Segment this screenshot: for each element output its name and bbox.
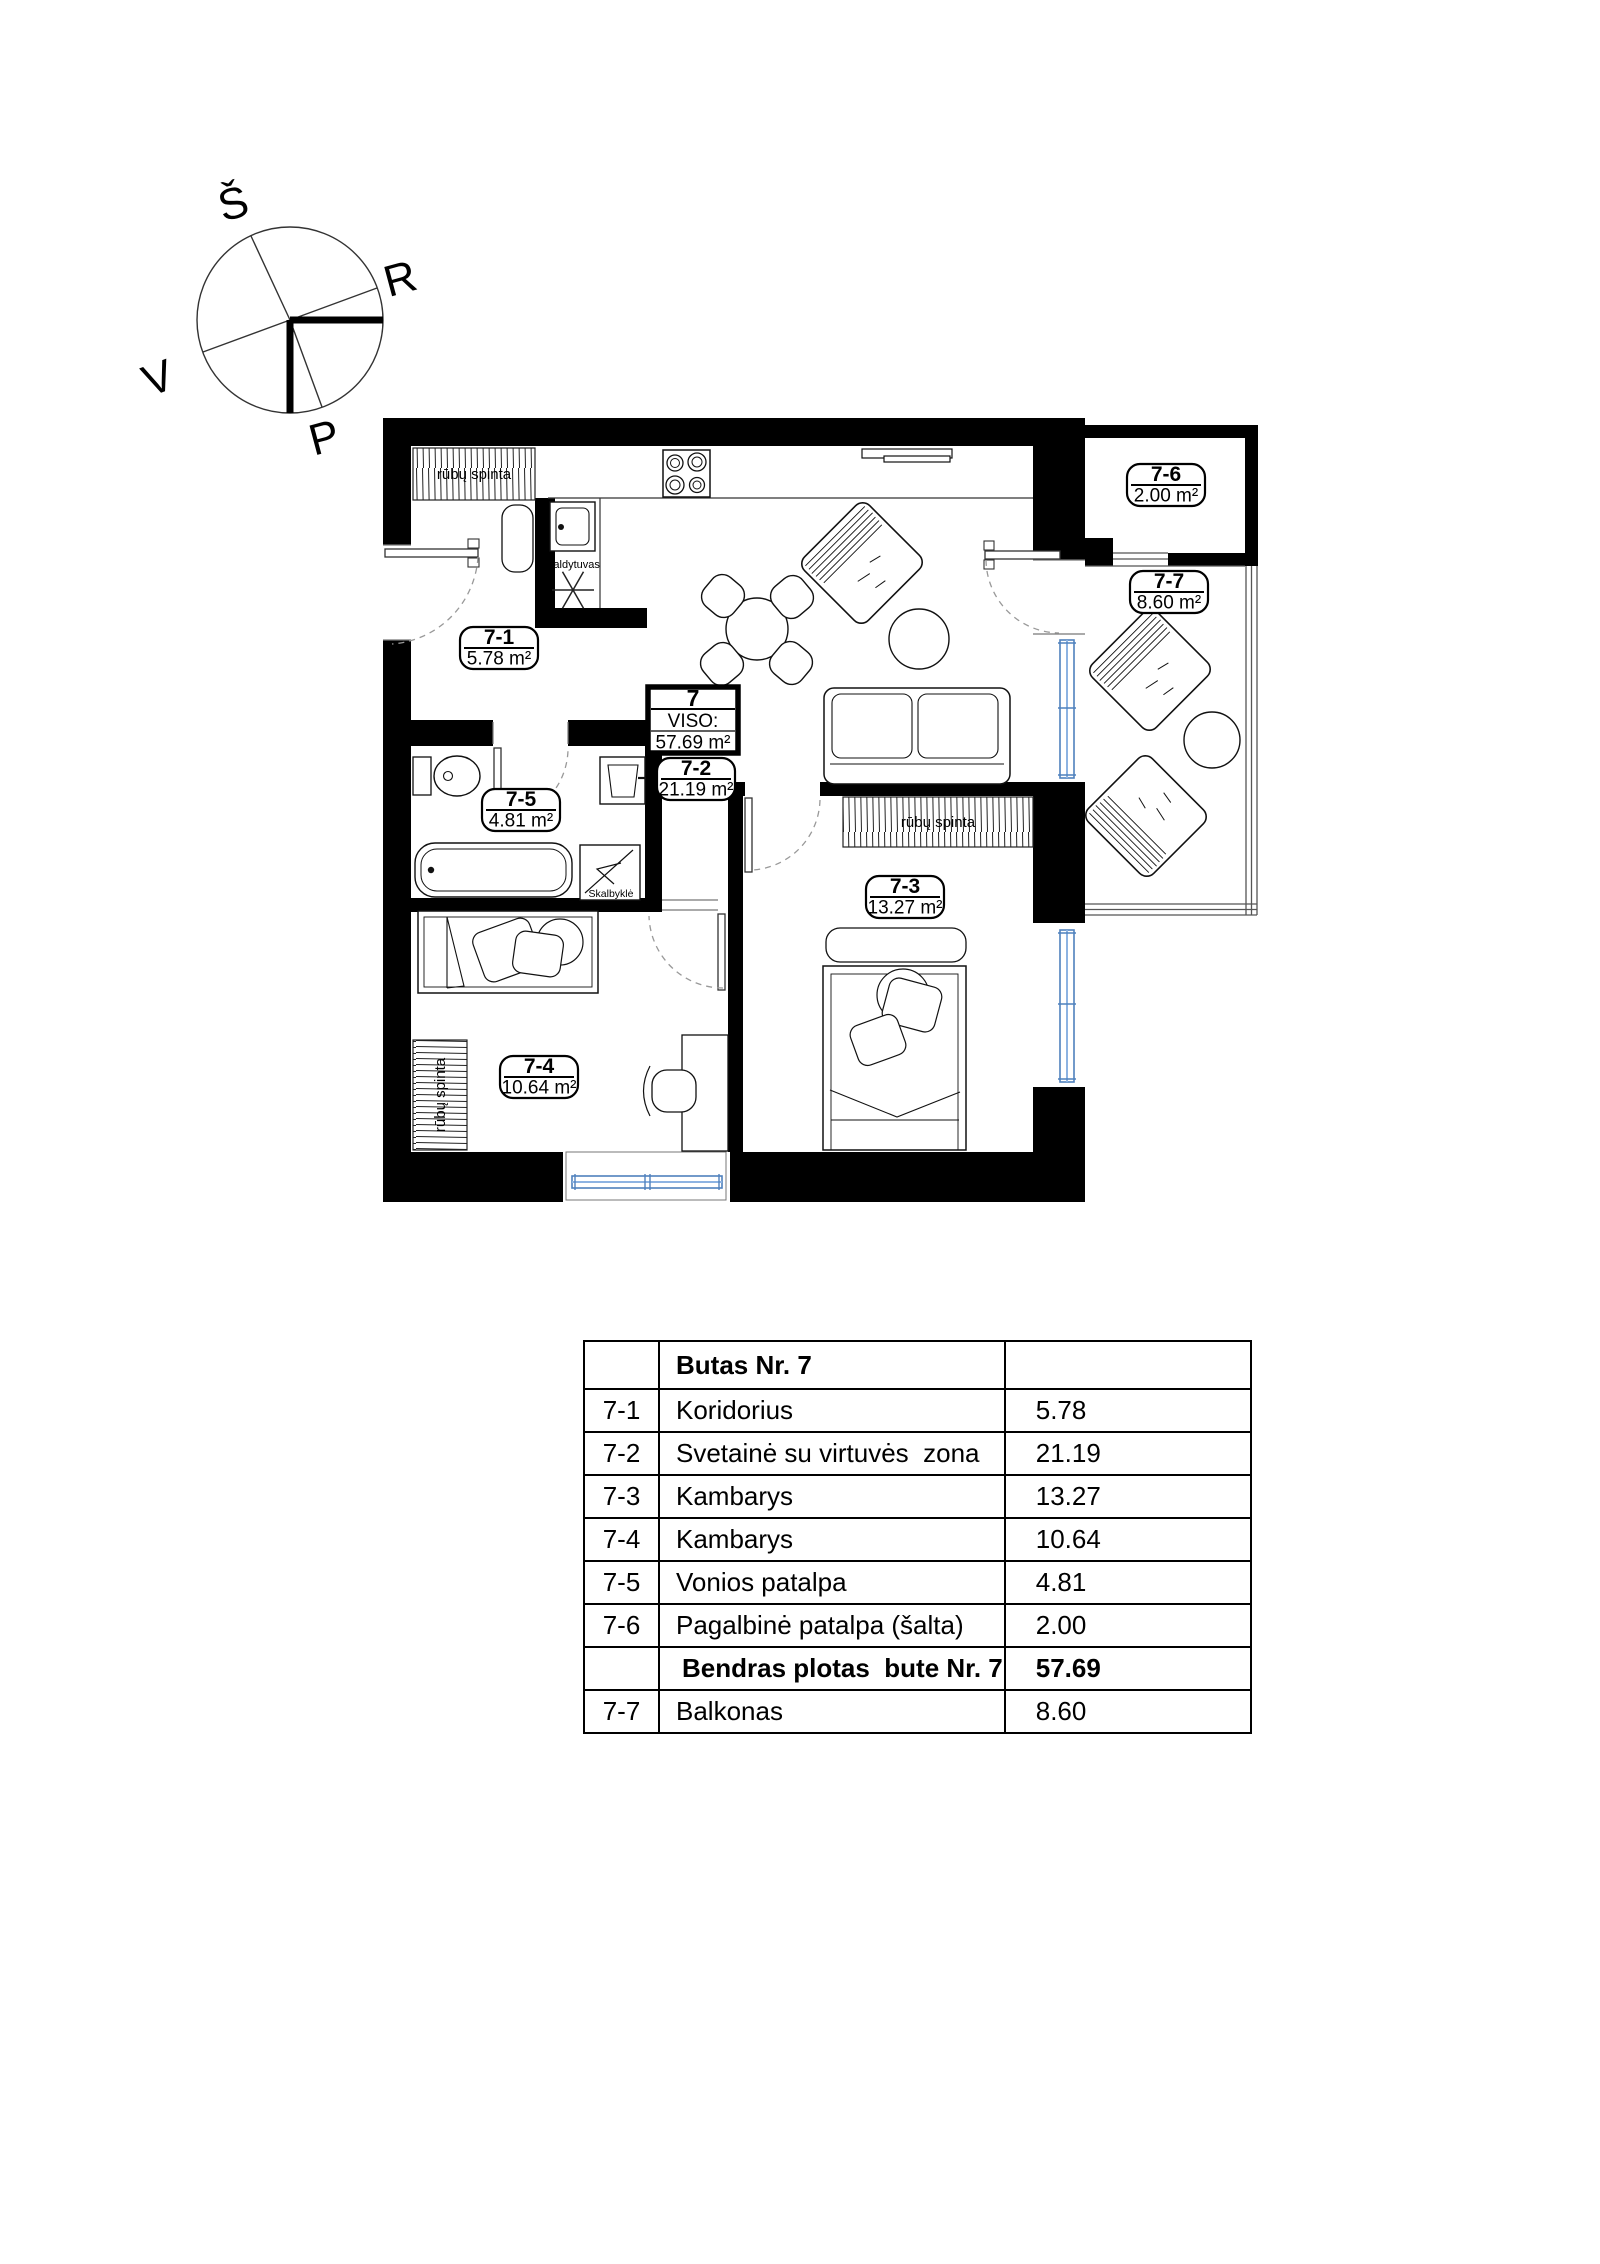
row-code: 7-7 bbox=[584, 1690, 659, 1733]
double-bed bbox=[823, 966, 966, 1150]
total-code-cell bbox=[584, 1647, 659, 1690]
balcony bbox=[1082, 606, 1240, 881]
balcony-table bbox=[1184, 712, 1240, 768]
floor-plan-page: Š R V P bbox=[0, 0, 1600, 2264]
row-code: 7-6 bbox=[584, 1604, 659, 1647]
room-label-7-3: 7-3 13.27 m² bbox=[866, 875, 944, 919]
kitchen: Šaldytuvas bbox=[502, 450, 1033, 608]
row-area: 8.60 bbox=[1005, 1690, 1251, 1733]
toilet-icon bbox=[413, 756, 480, 796]
snowflake-icon bbox=[552, 572, 594, 608]
wardrobe-7-3: rūbų spinta bbox=[843, 797, 1033, 847]
room-label-7-7: 7-7 8.60 m² bbox=[1130, 570, 1208, 614]
svg-text:rūbų spinta: rūbų spinta bbox=[437, 466, 512, 483]
compass-east-label: R bbox=[379, 251, 422, 307]
side-table bbox=[889, 609, 949, 669]
svg-text:7-7: 7-7 bbox=[1154, 570, 1184, 593]
header-code-cell bbox=[584, 1341, 659, 1389]
bedroom2-door bbox=[649, 900, 725, 990]
row-area: 2.00 bbox=[1005, 1604, 1251, 1647]
bedroom-7-4: rūbų spinta bbox=[413, 911, 728, 1151]
tv-bench bbox=[862, 449, 952, 462]
svg-text:57.69 m²: 57.69 m² bbox=[656, 733, 731, 754]
total-name-cell: Bendras plotas bute Nr. 7 bbox=[659, 1647, 1005, 1690]
storage-door-threshold bbox=[1113, 553, 1168, 559]
table-row: 7-2 Svetainė su virtuvės zona 21.19 bbox=[584, 1432, 1251, 1475]
table-row: 7-5 Vonios patalpa 4.81 bbox=[584, 1561, 1251, 1604]
svg-text:Skalbyklė: Skalbyklė bbox=[589, 888, 634, 900]
headboard-shelf bbox=[826, 928, 966, 962]
row-name: Koridorius bbox=[659, 1389, 1005, 1432]
svg-text:7-3: 7-3 bbox=[890, 875, 920, 898]
wardrobe-7-1: rūbų spinta bbox=[413, 448, 535, 500]
room-label-7-5: 7-5 4.81 m² bbox=[482, 788, 560, 832]
svg-text:21.19 m²: 21.19 m² bbox=[659, 780, 734, 801]
row-code: 7-1 bbox=[584, 1389, 659, 1432]
row-name: Kambarys bbox=[659, 1518, 1005, 1561]
svg-text:7-1: 7-1 bbox=[484, 626, 515, 649]
row-area: 21.19 bbox=[1005, 1432, 1251, 1475]
sink-icon bbox=[550, 502, 595, 551]
area-table-grid: Butas Nr. 7 7-1 Koridorius 5.78 7-2 Svet… bbox=[583, 1340, 1252, 1734]
row-name: Kambarys bbox=[659, 1475, 1005, 1518]
balcony-armchair-1 bbox=[1086, 606, 1215, 735]
floor-plan-drawing: Š R V P bbox=[0, 0, 1600, 2264]
svg-text:7: 7 bbox=[687, 685, 700, 711]
living-room bbox=[695, 449, 1010, 784]
row-name: Svetainė su virtuvės zona bbox=[659, 1432, 1005, 1475]
bedroom1-window bbox=[1058, 930, 1076, 1082]
svg-text:8.60 m²: 8.60 m² bbox=[1137, 593, 1201, 614]
svg-text:2.00 m²: 2.00 m² bbox=[1134, 486, 1198, 507]
washing-machine-icon: Skalbyklė bbox=[580, 845, 640, 900]
svg-text:4.81 m²: 4.81 m² bbox=[489, 811, 553, 832]
living-room-window bbox=[1058, 640, 1076, 778]
row-area: 4.81 bbox=[1005, 1561, 1251, 1604]
total-area-cell: 57.69 bbox=[1005, 1647, 1251, 1690]
desk-chair bbox=[644, 1066, 697, 1116]
header-area-cell bbox=[1005, 1341, 1251, 1389]
balcony-armchair-2 bbox=[1082, 752, 1211, 881]
bedroom1-door bbox=[745, 798, 820, 872]
hallway-cabinet bbox=[502, 505, 533, 572]
washbasin-icon bbox=[600, 757, 646, 804]
table-row: 7-3 Kambarys 13.27 bbox=[584, 1475, 1251, 1518]
svg-text:5.78 m²: 5.78 m² bbox=[467, 649, 531, 670]
table-balcony-row: 7-7 Balkonas 8.60 bbox=[584, 1690, 1251, 1733]
row-code: 7-2 bbox=[584, 1432, 659, 1475]
compass-north-label: Š bbox=[212, 176, 253, 232]
bathtub-icon bbox=[415, 843, 572, 897]
room-label-7-6: 7-6 2.00 m² bbox=[1127, 463, 1205, 507]
table-row: 7-1 Koridorius 5.78 bbox=[584, 1389, 1251, 1432]
row-name: Balkonas bbox=[659, 1690, 1005, 1733]
svg-text:Šaldytuvas: Šaldytuvas bbox=[546, 558, 600, 571]
row-area: 13.27 bbox=[1005, 1475, 1251, 1518]
compass-rose: Š R V P bbox=[136, 176, 422, 466]
wardrobe-7-4: rūbų spinta bbox=[413, 1040, 467, 1150]
area-table: Butas Nr. 7 7-1 Koridorius 5.78 7-2 Svet… bbox=[583, 1340, 1252, 1734]
row-code: 7-3 bbox=[584, 1475, 659, 1518]
svg-text:7-4: 7-4 bbox=[524, 1055, 555, 1078]
header-title-cell: Butas Nr. 7 bbox=[659, 1341, 1005, 1389]
bedroom-7-3: rūbų spinta bbox=[823, 797, 1033, 1150]
row-area: 10.64 bbox=[1005, 1518, 1251, 1561]
table-row: 7-4 Kambarys 10.64 bbox=[584, 1518, 1251, 1561]
single-bed bbox=[418, 911, 598, 993]
table-total-row: Bendras plotas bute Nr. 7 57.69 bbox=[584, 1647, 1251, 1690]
compass-west-label: V bbox=[136, 350, 181, 406]
svg-text:VISO:: VISO: bbox=[668, 711, 719, 732]
dining-set bbox=[695, 569, 819, 691]
table-row: 7-6 Pagalbinė patalpa (šalta) 2.00 bbox=[584, 1604, 1251, 1647]
svg-text:13.27 m²: 13.27 m² bbox=[868, 898, 943, 919]
svg-text:rūbų spinta: rūbų spinta bbox=[901, 814, 976, 831]
svg-text:rūbų spinta: rūbų spinta bbox=[432, 1057, 449, 1132]
table-header-row: Butas Nr. 7 bbox=[584, 1341, 1251, 1389]
svg-text:7-6: 7-6 bbox=[1151, 463, 1181, 486]
row-name: Pagalbinė patalpa (šalta) bbox=[659, 1604, 1005, 1647]
armchair bbox=[798, 499, 927, 628]
sofa bbox=[824, 688, 1010, 784]
room-label-7-4: 7-4 10.64 m² bbox=[500, 1055, 578, 1099]
row-area: 5.78 bbox=[1005, 1389, 1251, 1432]
room-label-7-2: 7-2 21.19 m² bbox=[657, 757, 735, 801]
row-code: 7-4 bbox=[584, 1518, 659, 1561]
compass-south-label: P bbox=[304, 411, 345, 466]
entry-door bbox=[383, 539, 479, 644]
svg-text:10.64 m²: 10.64 m² bbox=[502, 1078, 577, 1099]
svg-text:7-2: 7-2 bbox=[681, 757, 711, 780]
row-name: Vonios patalpa bbox=[659, 1561, 1005, 1604]
row-code: 7-5 bbox=[584, 1561, 659, 1604]
stove-icon bbox=[663, 450, 710, 497]
room-label-7-1: 7-1 5.78 m² bbox=[460, 626, 538, 670]
svg-text:7-5: 7-5 bbox=[506, 788, 537, 811]
total-area-box: 7 VISO: 57.69 m² bbox=[648, 685, 738, 754]
bedroom2-window bbox=[566, 1152, 726, 1200]
